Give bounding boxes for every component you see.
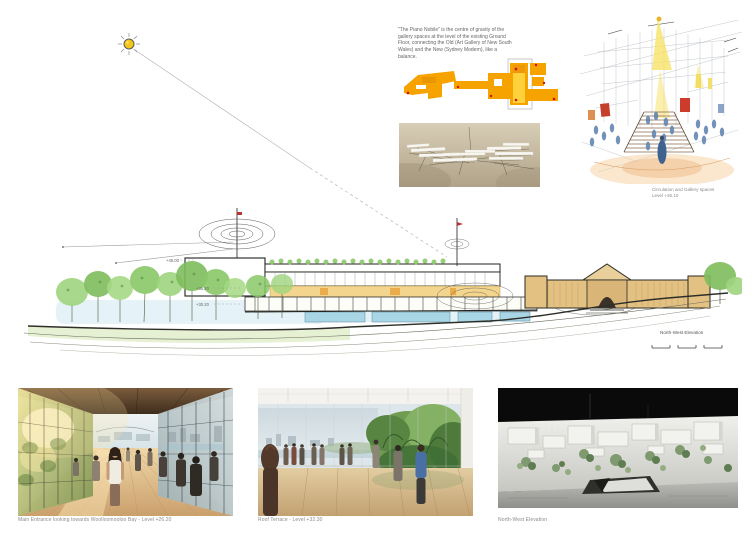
render-roof-terrace — [258, 388, 473, 516]
wood-sculpture — [261, 444, 279, 516]
circulation-sketch — [578, 12, 746, 184]
scale-bar — [652, 345, 722, 348]
plan-shapes — [404, 59, 558, 109]
model-photo-north-west — [498, 388, 738, 508]
render-caption-roof-terrace: Roof Terrace - Level +32.30 — [258, 517, 322, 524]
sketch-people — [590, 112, 724, 151]
elevation-caption: North-West Elevation — [660, 330, 704, 335]
level-label-35: +35.20 — [196, 286, 210, 291]
study-model-photo — [399, 123, 540, 187]
piano-nobile-plan — [398, 57, 568, 123]
circulation-sketch-caption: Circulation and Gallery spaces Level +26… — [652, 187, 714, 199]
level-label-30: +30.20 — [196, 302, 210, 307]
render-caption-main-entrance: Main Entrance looking towards Woolloomoo… — [18, 517, 172, 524]
elevation-drawing: +46.00 +35.20 +30.20 North-West Elevatio… — [20, 200, 742, 362]
render-caption-model-photo: North-West Elevation — [498, 517, 547, 524]
sketch-caption-line2: Level +26.10 — [652, 193, 714, 199]
level-label-46: +46.00 — [166, 258, 180, 263]
old-gallery — [525, 264, 710, 313]
sketch-accents — [608, 22, 738, 52]
presentation-board: "The Piano Nobile" is the centre of grav… — [0, 0, 756, 540]
piano-nobile-note: "The Piano Nobile" is the centre of grav… — [398, 27, 516, 60]
sun-icon — [117, 32, 141, 56]
render-main-entrance — [18, 388, 233, 516]
